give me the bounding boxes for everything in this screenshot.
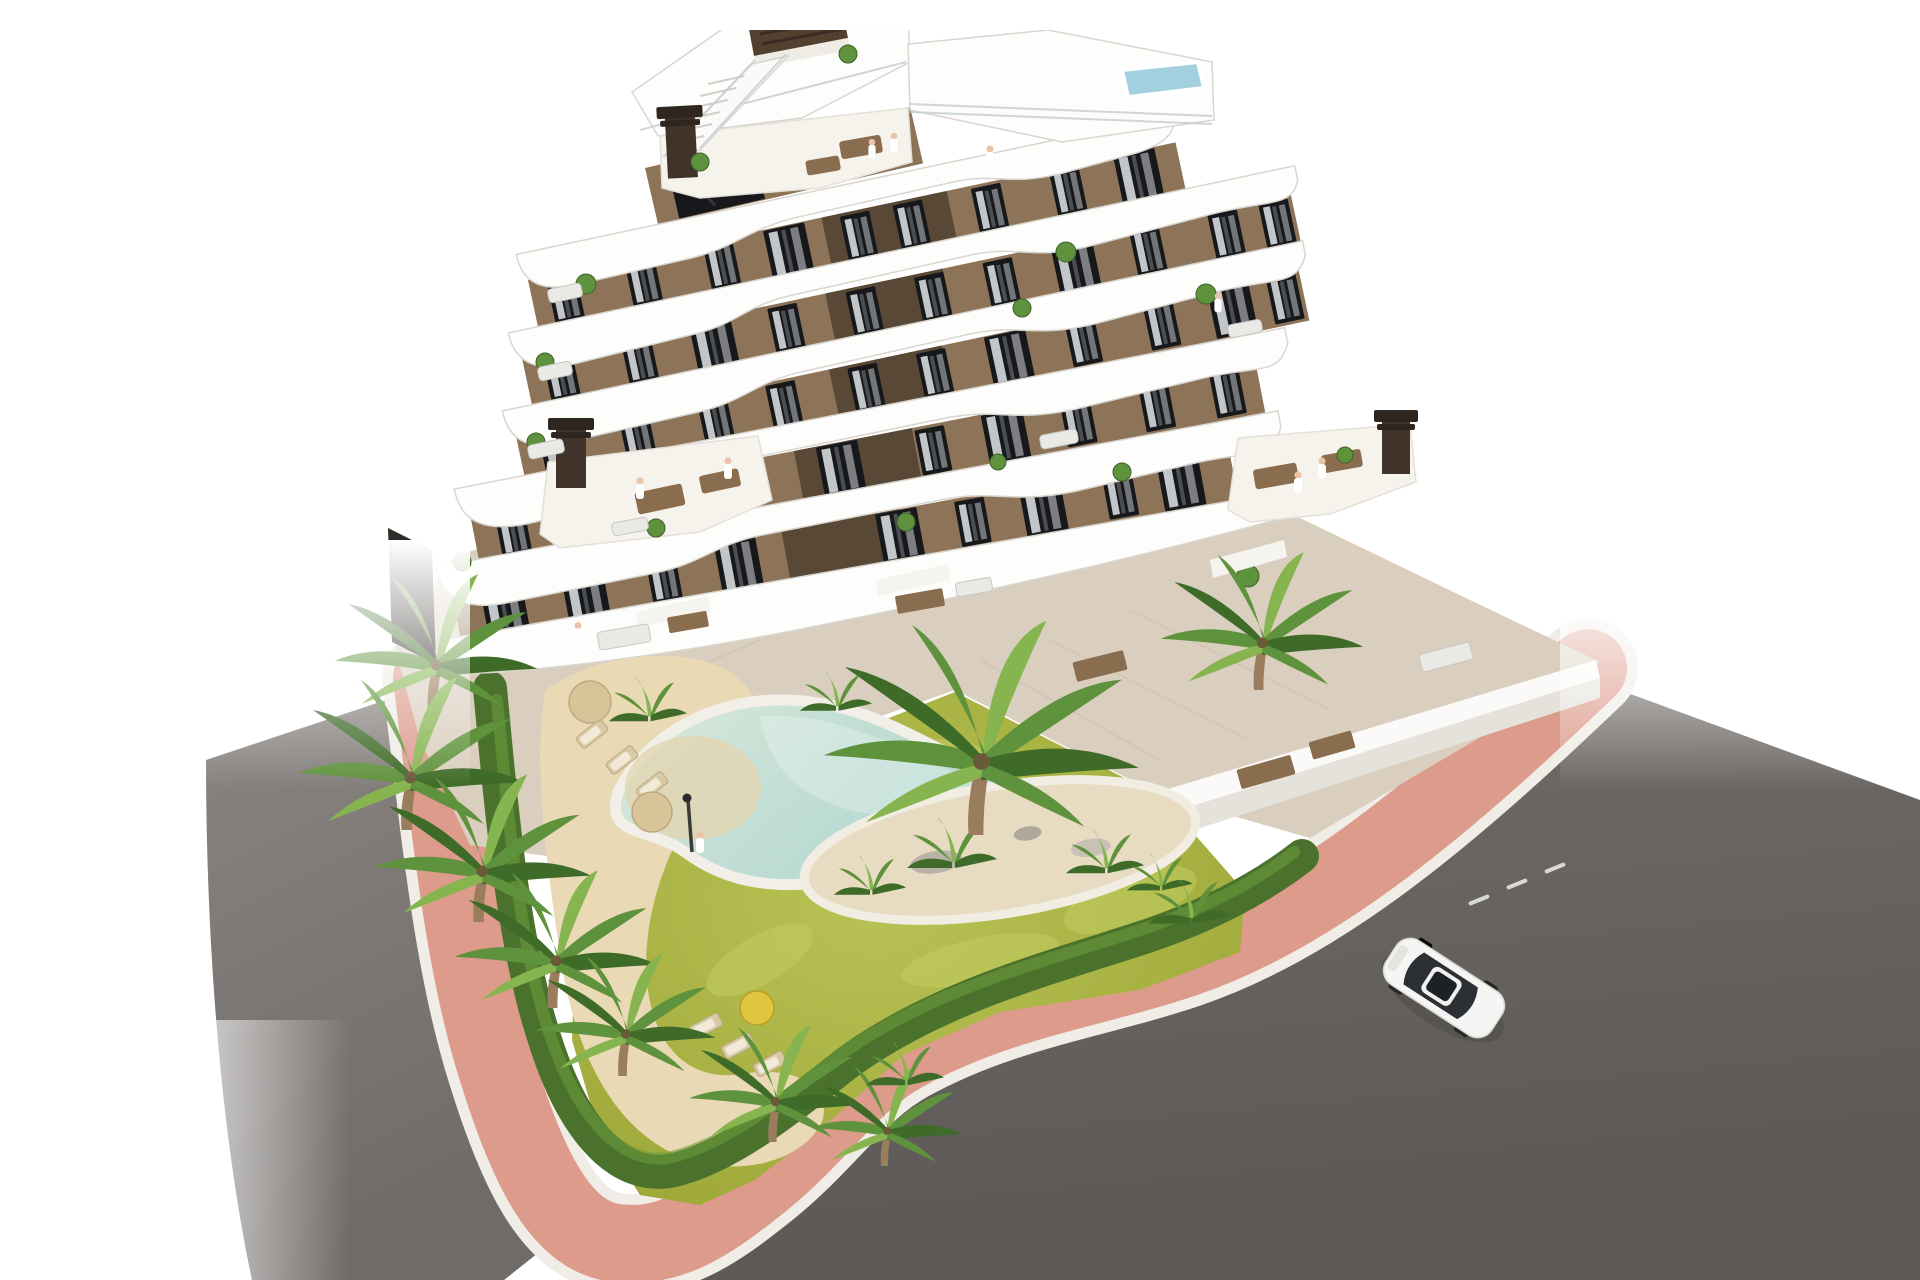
parasol-tan: [632, 792, 672, 832]
architectural-render: [0, 0, 1920, 1280]
person-ground-terrace: [574, 622, 582, 643]
parasol-yellow: [740, 991, 774, 1025]
person-right-terrace: [1318, 457, 1326, 479]
person-left-terrace: [724, 457, 732, 479]
person-right-terrace: [1294, 471, 1302, 493]
parasol-tan: [569, 681, 611, 723]
person-left-terrace: [636, 477, 644, 499]
roof-plant: [839, 45, 857, 63]
person-balcony: [1214, 293, 1221, 312]
person-roof-wing: [986, 145, 994, 167]
person-roof: [890, 133, 897, 152]
person-garden: [696, 831, 704, 853]
render-canvas: [0, 0, 1920, 1280]
person-roof: [868, 139, 875, 158]
